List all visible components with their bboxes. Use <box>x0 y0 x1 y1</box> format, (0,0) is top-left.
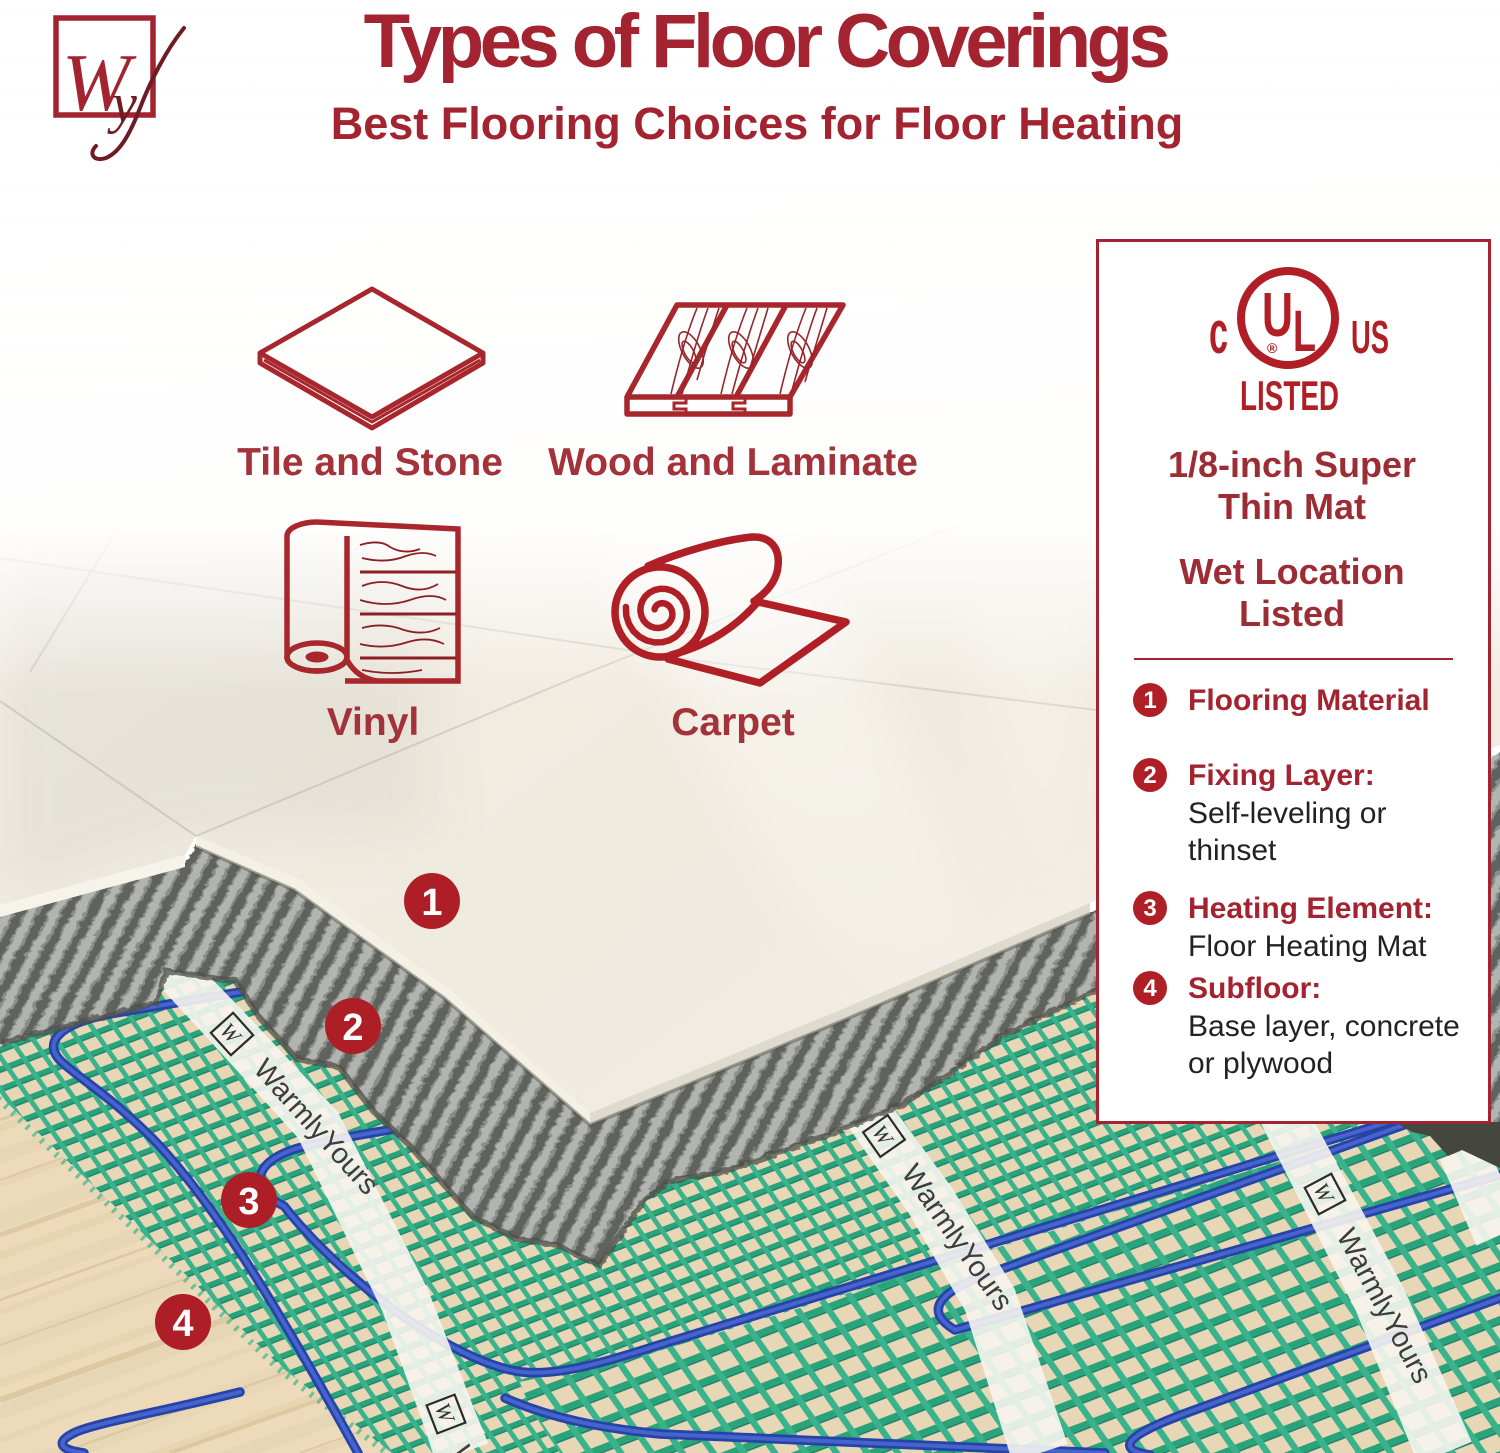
svg-text:1: 1 <box>1143 687 1156 714</box>
svg-text:LISTED: LISTED <box>1240 372 1339 419</box>
svg-text:1/8-inch Super: 1/8-inch Super <box>1168 444 1416 485</box>
svg-text:Floor Heating Mat: Floor Heating Mat <box>1188 930 1427 963</box>
svg-text:Tile and Stone: Tile and Stone <box>237 441 503 484</box>
svg-text:or plywood: or plywood <box>1188 1047 1333 1080</box>
svg-text:c: c <box>1209 299 1228 366</box>
svg-text:4: 4 <box>1143 975 1157 1002</box>
svg-text:Vinyl: Vinyl <box>327 701 420 744</box>
svg-text:Thin Mat: Thin Mat <box>1218 486 1366 527</box>
svg-text:3: 3 <box>238 1181 259 1223</box>
svg-text:2: 2 <box>342 1007 363 1049</box>
svg-text:US: US <box>1351 311 1389 363</box>
svg-text:3: 3 <box>1143 895 1156 922</box>
svg-text:Carpet: Carpet <box>671 701 795 744</box>
svg-text:Wood and Laminate: Wood and Laminate <box>548 441 918 484</box>
svg-text:L: L <box>1293 299 1316 364</box>
svg-text:Wet Location: Wet Location <box>1179 551 1404 592</box>
svg-text:Heating Element:: Heating Element: <box>1188 892 1433 925</box>
svg-text:Listed: Listed <box>1239 593 1345 634</box>
svg-text:1: 1 <box>421 882 442 924</box>
svg-text:Fixing Layer:: Fixing Layer: <box>1188 759 1375 792</box>
svg-text:Self-leveling or: Self-leveling or <box>1188 797 1386 830</box>
svg-text:®: ® <box>1267 340 1278 356</box>
svg-text:Base layer, concrete: Base layer, concrete <box>1188 1010 1460 1043</box>
svg-text:thinset: thinset <box>1188 834 1277 867</box>
svg-text:2: 2 <box>1143 762 1156 789</box>
svg-text:Flooring Material: Flooring Material <box>1188 684 1430 717</box>
svg-text:Subfloor:: Subfloor: <box>1188 972 1321 1005</box>
svg-text:4: 4 <box>172 1303 193 1345</box>
